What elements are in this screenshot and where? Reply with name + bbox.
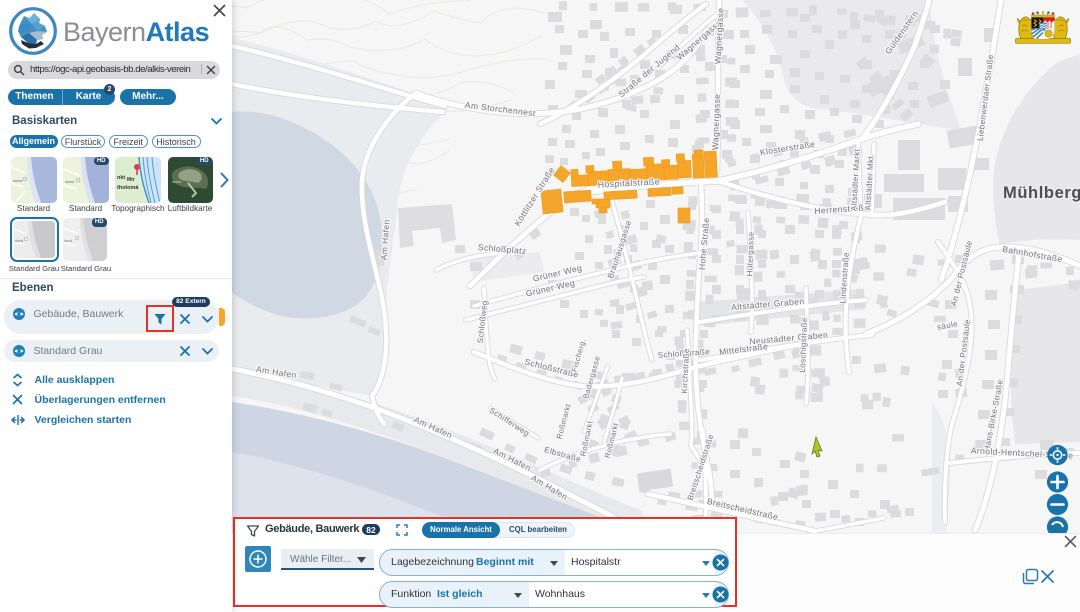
svg-text:tholomä: tholomä: [117, 185, 139, 191]
svg-text:dorná: dorná: [15, 239, 23, 243]
svg-text:nkt: nkt: [117, 175, 125, 181]
svg-text:dorná: dorná: [64, 239, 72, 243]
svg-text:dorná: dorná: [172, 180, 181, 184]
svg-text:dorná: dorná: [13, 179, 22, 183]
svg-text:Hütergasse: Hütergasse: [745, 231, 756, 276]
svg-text:dorná: dorná: [65, 180, 74, 184]
svg-text:Wagnergasse: Wagnergasse: [710, 93, 722, 150]
svg-text:Mtr: Mtr: [127, 177, 135, 183]
svg-text:Mühlberg: Mühlberg: [1003, 184, 1080, 202]
